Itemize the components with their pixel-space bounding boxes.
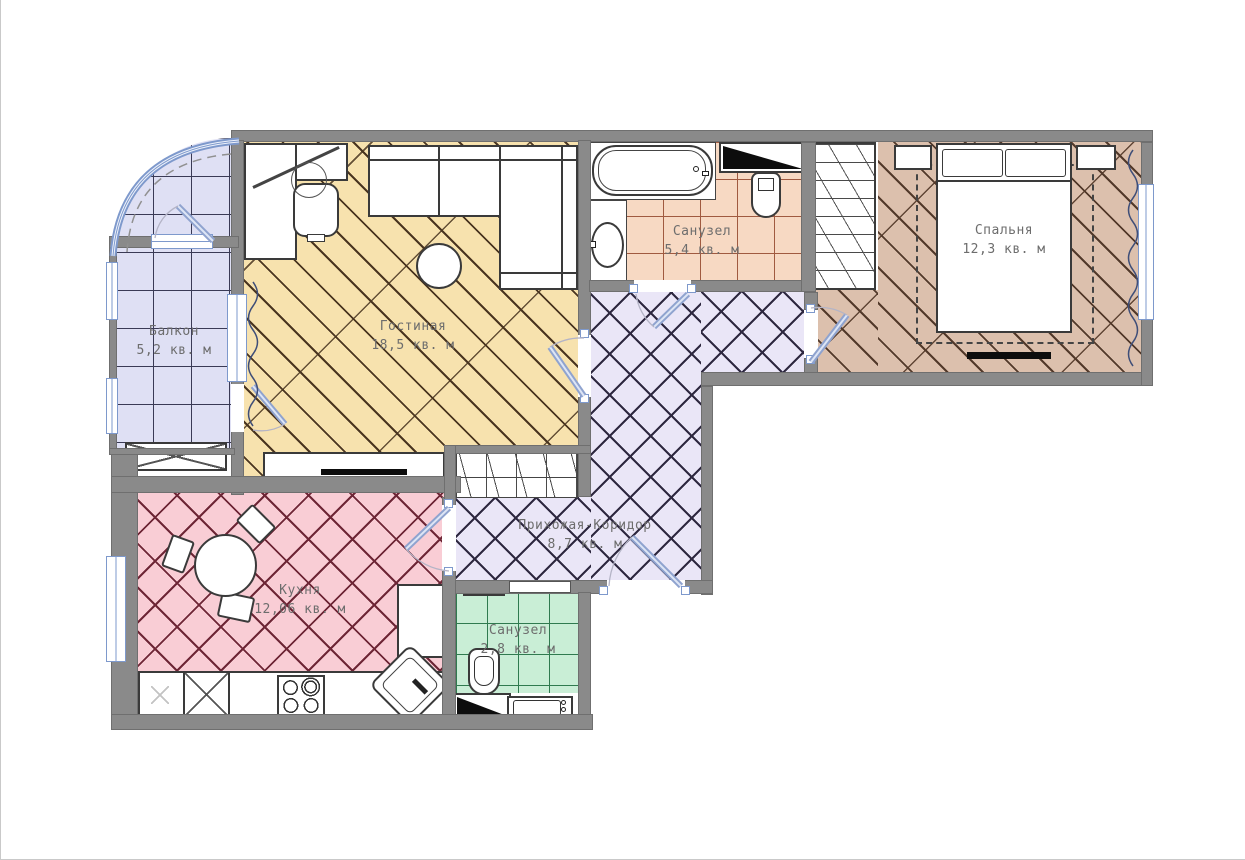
room-label-bathroom: Санузел 5,4 кв. м (665, 223, 740, 261)
room-area: 8,7 кв. м (548, 537, 623, 552)
room-label-balcony: Балкон 5,2 кв. м (137, 323, 212, 361)
sofa-right-section (499, 145, 578, 290)
sofa-back-line (370, 159, 576, 161)
door-gap-kitchen (442, 505, 456, 571)
tv-bedroom (967, 352, 1051, 359)
jamb-kitchen-bottom (444, 567, 453, 576)
bathtub-drain-icon (702, 171, 709, 176)
wall-hallway-right (701, 386, 713, 595)
cabinet-crossed (183, 671, 230, 718)
wall-closet-left-stub (444, 445, 456, 507)
jamb-living-top (580, 329, 589, 338)
jamb-bath-left (629, 284, 638, 293)
room-area: 2,8 кв. м (481, 642, 556, 657)
wall-wc-right (578, 592, 591, 718)
jamb-bedroom-top (806, 304, 815, 313)
bed-blanket-line (938, 180, 1070, 182)
room-name: Санузел (489, 623, 547, 638)
room-label-wc: Санузел 2,8 кв. м (481, 622, 556, 660)
room-label-living: Гостиная 18,5 кв. м (371, 318, 454, 356)
room-area: 18,5 кв. м (371, 338, 454, 353)
room-name: Кухня (279, 583, 321, 598)
room-area: 5,2 кв. м (137, 343, 212, 358)
toilet-small-bowl (474, 656, 494, 686)
dining-table (194, 534, 257, 597)
door-gap-entrance (607, 580, 685, 594)
washbasin-small-faucet-icon (561, 700, 566, 705)
room-label-hallway: Прихожая-Коридор 8,7 кв. м (518, 517, 651, 555)
door-gap-living-balcony (231, 384, 244, 432)
plant-pot (291, 162, 327, 198)
wardrobe-bedroom (813, 142, 876, 290)
room-name: Балкон (149, 324, 199, 339)
wall-kitchen-top (111, 476, 461, 493)
coffee-table (416, 243, 462, 289)
door-wc-slab (509, 581, 571, 593)
wardrobe-hallway (456, 453, 578, 498)
window-balcony-left-2 (106, 378, 118, 434)
sofa-arm-line (501, 272, 576, 274)
stove (277, 675, 325, 717)
toilet-tank (758, 178, 774, 191)
room-area: 12,06 кв. м (254, 602, 346, 617)
bathtub-faucet-icon (693, 166, 699, 172)
door-gap-bedroom (804, 310, 818, 358)
wall-top (231, 130, 1153, 142)
room-area: 12,3 кв. м (962, 242, 1045, 257)
wall-bathroom-right (801, 142, 816, 292)
jamb-bedroom-bottom (806, 355, 815, 364)
nightstand-right (1076, 145, 1116, 170)
jamb-entrance-left (599, 586, 608, 595)
pillow-left (942, 149, 1003, 177)
door-gap-bathroom (634, 280, 691, 292)
room-label-kitchen: Кухня 12,06 кв. м (254, 582, 346, 620)
room-area: 5,4 кв. м (665, 243, 740, 258)
room-name: Спальня (975, 223, 1033, 238)
jamb-entrance-right (681, 586, 690, 595)
floor-plan: Балкон 5,2 кв. м Гостиная 18,5 кв. м Сан… (0, 0, 1245, 860)
jamb-bath-right (687, 284, 696, 293)
jamb-kitchen-top (444, 499, 453, 508)
bedroom-entry-floor (816, 290, 878, 372)
bathtub-inner (598, 150, 706, 191)
door-gap-living (578, 335, 591, 397)
room-name: Санузел (673, 224, 731, 239)
storage-box (125, 442, 227, 471)
room-name: Гостиная (380, 319, 447, 334)
window-balcony-left-1 (106, 262, 118, 320)
counter-x-mark (151, 686, 169, 704)
tv-living (321, 469, 407, 475)
wall-bottom-outer (111, 714, 593, 730)
washbasin-small-drain-icon (561, 707, 566, 712)
window-living-balcony (227, 294, 247, 382)
pillow-right (1005, 149, 1066, 177)
desk-return (244, 143, 297, 260)
hallway-floor-corridor (701, 292, 804, 372)
wall-living-right (578, 140, 591, 497)
jamb-living-bottom (580, 394, 589, 403)
vent-shaft (719, 142, 807, 173)
nightstand-left (894, 145, 932, 170)
wall-closet-top (444, 445, 591, 454)
window-balcony-mid (151, 234, 213, 249)
sofa-back-line-right (561, 147, 563, 288)
window-bedroom (1138, 184, 1154, 320)
wall-balcony-bottom-thin (109, 448, 235, 455)
balcony-floor (115, 138, 233, 452)
wall-bathroom-bottom (589, 280, 816, 292)
fridge (397, 584, 447, 658)
wall-bottom-long (701, 372, 1153, 386)
window-kitchen (106, 556, 126, 662)
vent-shaft-icon (723, 146, 803, 169)
room-name: Прихожая-Коридор (518, 518, 651, 533)
office-chair-base (307, 234, 325, 242)
room-label-bedroom: Спальня 12,3 кв. м (962, 222, 1045, 260)
sofa-cushion-line (438, 147, 440, 215)
